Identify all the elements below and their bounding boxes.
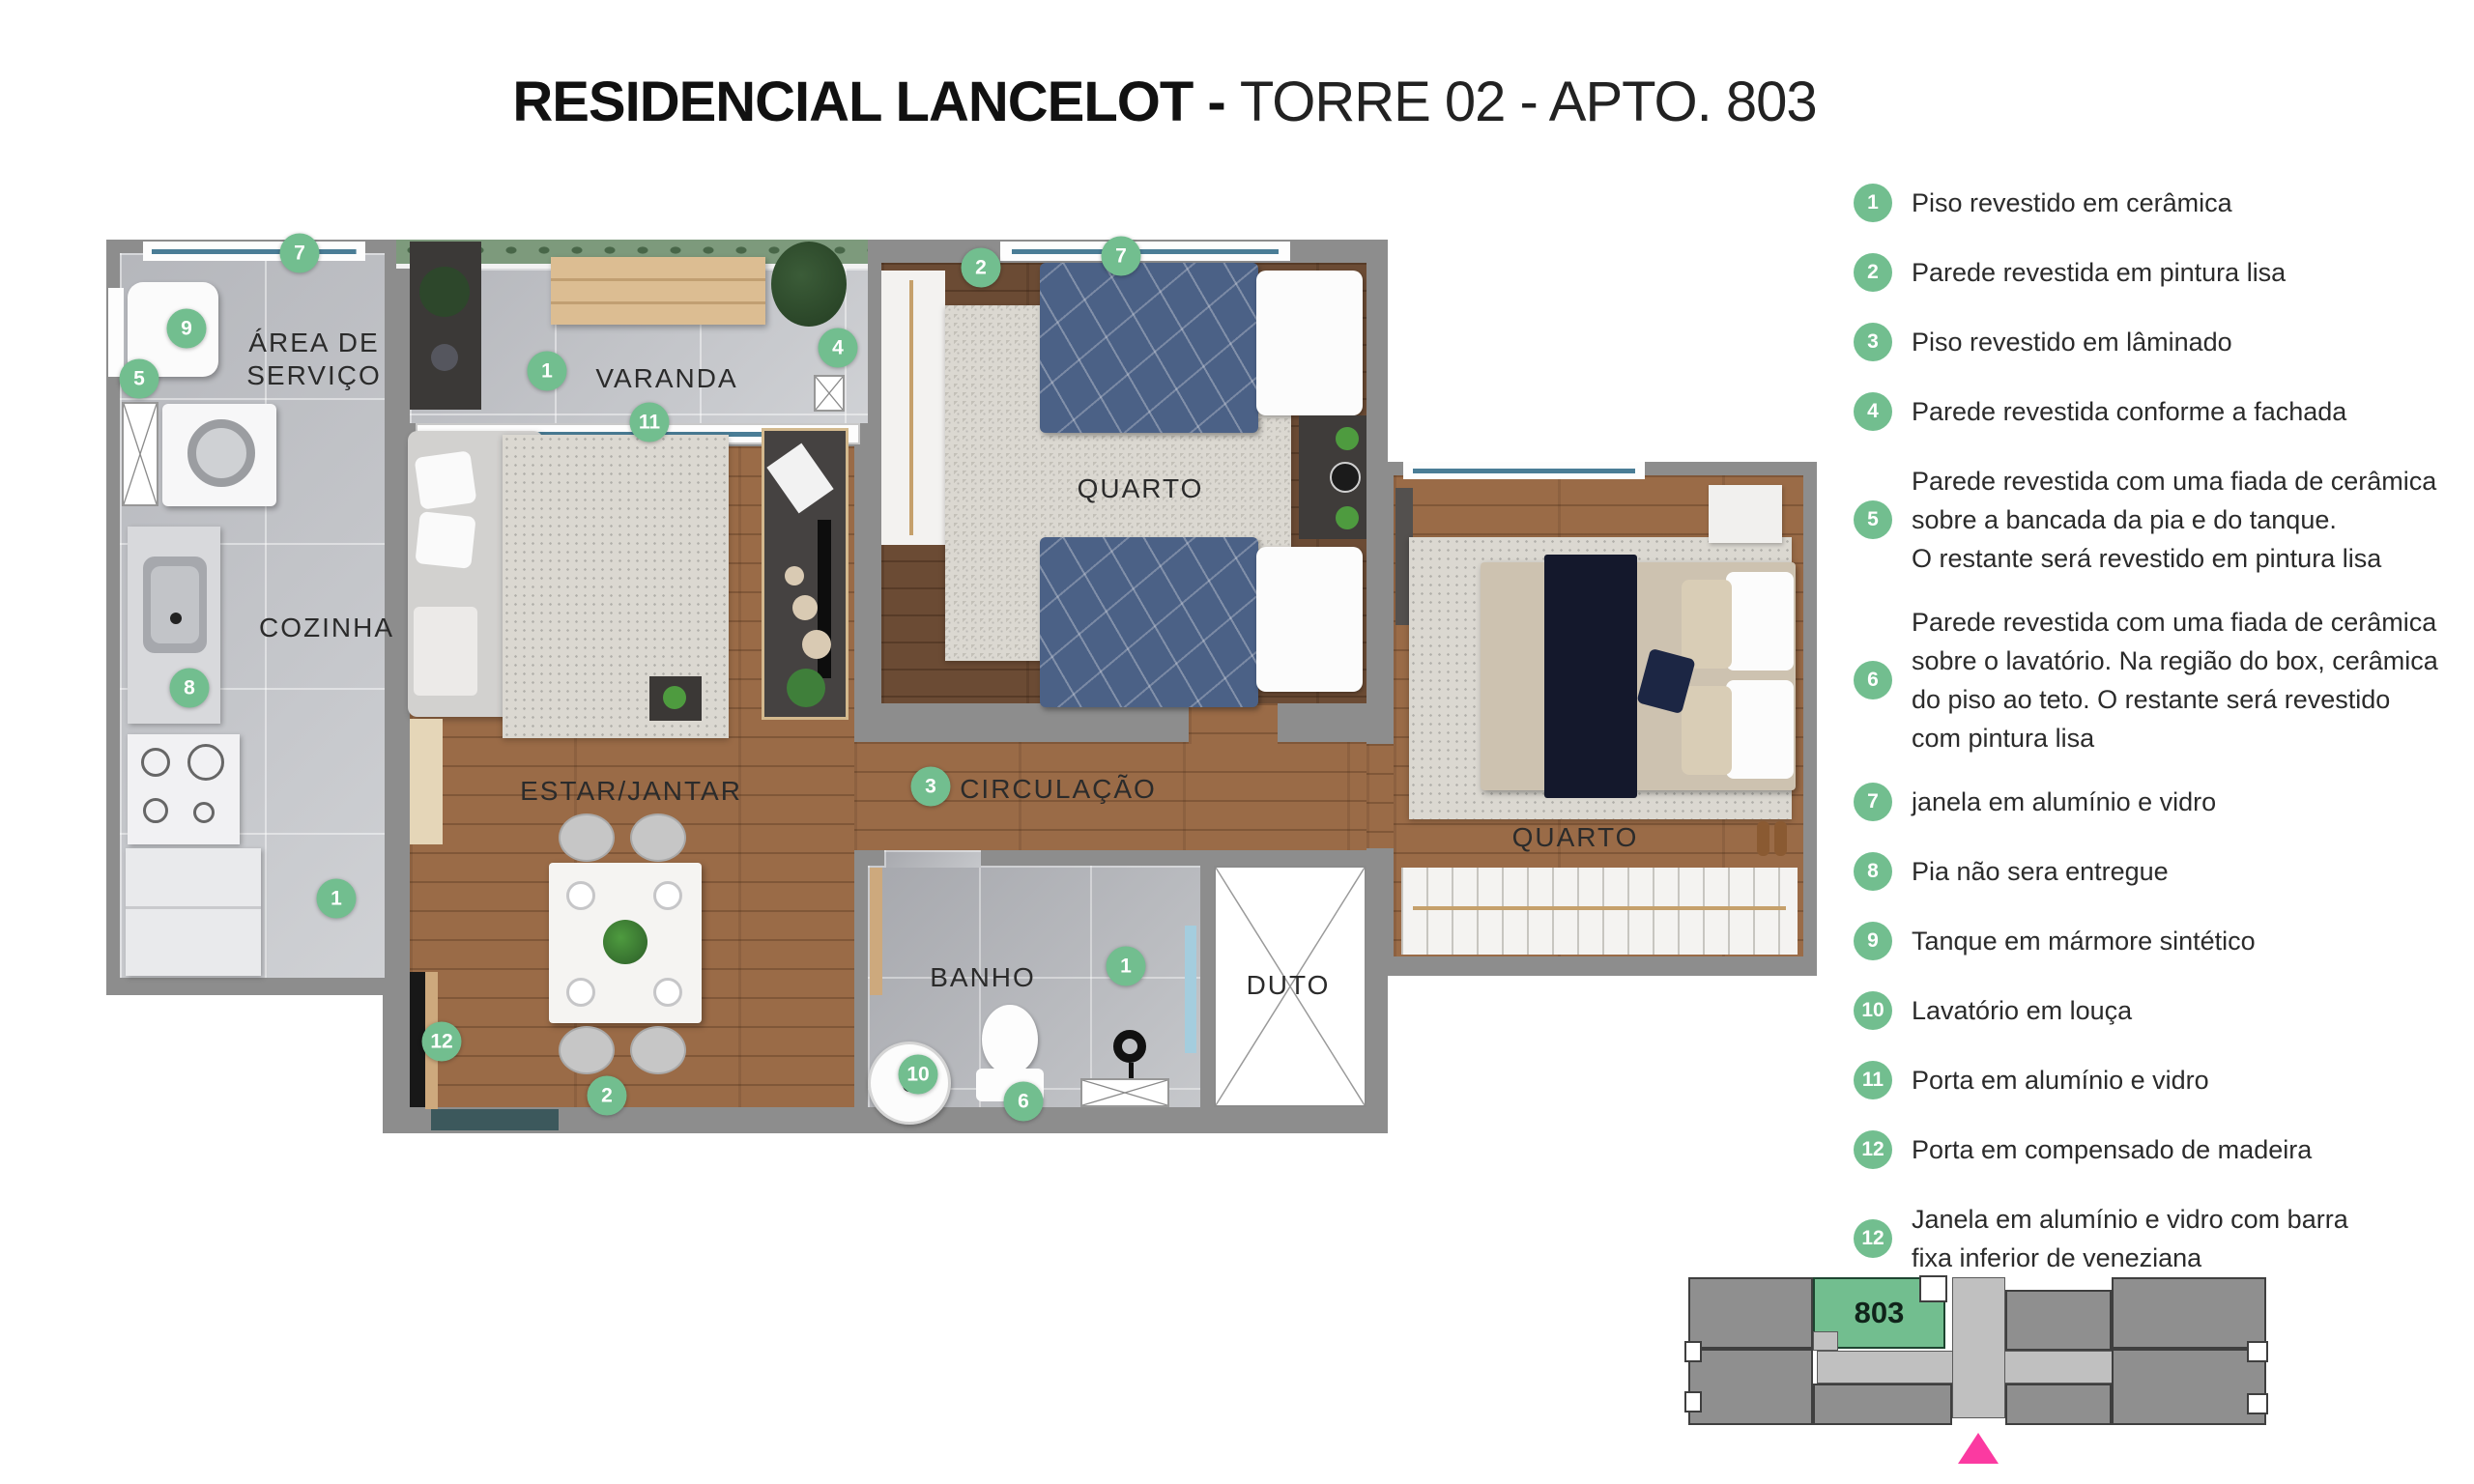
keyplan-entrance-arrow-icon bbox=[1958, 1433, 1999, 1464]
varanda-console-decor bbox=[431, 344, 458, 371]
quarto1-bed-b-pillow bbox=[1256, 547, 1363, 692]
keyplan-unit bbox=[2005, 1290, 2112, 1351]
keyplan-unit bbox=[1688, 1349, 1813, 1425]
legend-number-badge: 8 bbox=[1854, 852, 1892, 891]
legend-item-6: 6Parede revestida com uma fiada de cerâm… bbox=[1854, 603, 2472, 757]
quarto1-bed-a-pillow bbox=[1256, 271, 1363, 415]
varanda-console-plant bbox=[419, 267, 470, 317]
kitchen-faucet bbox=[170, 613, 182, 624]
legend-item-text: janela em alumínio e vidro bbox=[1912, 783, 2216, 821]
quarto2-shoes bbox=[1757, 821, 1769, 856]
plan-marker-6: 6 bbox=[1004, 1082, 1044, 1122]
keyplan: 803 bbox=[1682, 1270, 2281, 1473]
legend-number-badge: 1 bbox=[1854, 184, 1892, 222]
dining-chair bbox=[630, 1026, 686, 1074]
legend-item-13: 12Janela em alumínio e vidro com barra f… bbox=[1854, 1200, 2472, 1277]
side-table-plant bbox=[663, 686, 686, 709]
legend-item-text: Lavatório em louça bbox=[1912, 991, 2132, 1030]
varanda-bench-slat bbox=[551, 301, 765, 304]
room-label-duto: DUTO bbox=[1247, 969, 1331, 1002]
plan-marker-1: 1 bbox=[317, 879, 357, 919]
quarto1-wardrobe bbox=[881, 271, 945, 545]
plan-marker-7: 7 bbox=[280, 234, 320, 273]
dining-chair bbox=[630, 813, 686, 862]
stove bbox=[128, 734, 240, 844]
room-label-circulacao: CIRCULAÇÃO bbox=[960, 773, 1157, 806]
room-label-quarto-1: QUARTO bbox=[1078, 472, 1204, 505]
tv-console-bowl bbox=[785, 566, 804, 585]
quarto2-pillow-tan bbox=[1682, 580, 1732, 669]
window-quarto-2 bbox=[1403, 462, 1645, 479]
quarto2-pillow bbox=[1726, 572, 1794, 671]
legend-number-badge: 12 bbox=[1854, 1219, 1892, 1258]
keyplan-notch bbox=[2247, 1393, 2268, 1414]
legend-item-text: Piso revestido em lâminado bbox=[1912, 323, 2232, 361]
keyplan-corridor bbox=[1952, 1277, 2005, 1418]
floorplan-page: RESIDENCIAL LANCELOT - TORRE 02 - APTO. … bbox=[0, 0, 2474, 1484]
varanda-bench bbox=[551, 257, 765, 325]
plan-marker-8: 8 bbox=[170, 669, 210, 708]
legend-number-badge: 9 bbox=[1854, 922, 1892, 960]
room-label-area-servico: ÁREA DE SERVIÇO bbox=[246, 327, 382, 392]
keyplan-notch bbox=[1684, 1341, 1702, 1362]
legend-item-3: 3Piso revestido em lâminado bbox=[1854, 323, 2472, 361]
legend-item-text: Parede revestida com uma fiada de cerâmi… bbox=[1912, 603, 2438, 757]
floorplan: ÁREA DE SERVIÇOVARANDAQUARTOCOZINHAESTAR… bbox=[0, 0, 1836, 1159]
dining-centerpiece-plant bbox=[603, 920, 647, 964]
kitchen-sink-basin bbox=[151, 566, 199, 643]
plan-marker-3: 3 bbox=[911, 767, 951, 807]
tv-console-bowl bbox=[792, 595, 818, 620]
fridge-divider bbox=[126, 906, 261, 909]
legend-number-badge: 7 bbox=[1854, 783, 1892, 821]
legend-item-text: Parede revestida em pintura lisa bbox=[1912, 253, 2286, 292]
stove-burner bbox=[143, 798, 168, 823]
plan-marker-11: 11 bbox=[630, 403, 670, 442]
legend-item-text: Janela em alumínio e vidro com barra fix… bbox=[1912, 1200, 2348, 1277]
quarto2-closet-rail bbox=[1413, 906, 1786, 910]
legend-number-badge: 11 bbox=[1854, 1061, 1892, 1099]
quarto1-bed-a bbox=[1040, 263, 1258, 433]
legend-item-text: Porta em compensado de madeira bbox=[1912, 1130, 2312, 1169]
entry-mat bbox=[431, 1109, 559, 1130]
quarto2-closet bbox=[1401, 868, 1798, 955]
legend-item-11: 11Porta em alumínio e vidro bbox=[1854, 1061, 2472, 1099]
plan-marker-12: 12 bbox=[422, 1022, 462, 1062]
window-area-servico bbox=[143, 242, 365, 261]
legend: 1Piso revestido em cerâmica2Parede reves… bbox=[1854, 184, 2472, 1302]
plan-marker-2: 2 bbox=[588, 1076, 627, 1116]
keyplan-notch bbox=[2247, 1341, 2268, 1362]
legend-item-text: Piso revestido em cerâmica bbox=[1912, 184, 2232, 222]
quarto2-pillow bbox=[1726, 680, 1794, 779]
legend-item-1: 1Piso revestido em cerâmica bbox=[1854, 184, 2472, 222]
quarto2-pillow-tan bbox=[1682, 686, 1732, 775]
keyplan-unit bbox=[1813, 1384, 1952, 1425]
plan-marker-4: 4 bbox=[819, 328, 858, 368]
quarto1-nightstand-clock bbox=[1330, 462, 1361, 493]
legend-item-text: Tanque em mármore sintético bbox=[1912, 922, 2256, 960]
service-cabinet bbox=[122, 402, 158, 506]
plan-marker-1: 1 bbox=[1107, 947, 1146, 986]
tv-console-plant bbox=[787, 669, 825, 707]
varanda-shaft bbox=[814, 375, 845, 412]
banho-vanity bbox=[1080, 1078, 1169, 1107]
stove-burner bbox=[193, 802, 215, 823]
room-label-quarto-2: QUARTO bbox=[1512, 821, 1639, 854]
plan-marker-5: 5 bbox=[120, 359, 159, 399]
keyplan-unit bbox=[1688, 1277, 1813, 1349]
room-label-varanda: VARANDA bbox=[595, 362, 737, 395]
legend-item-text: Parede revestida conforme a fachada bbox=[1912, 392, 2346, 431]
quarto1-wardrobe-rail bbox=[909, 280, 913, 535]
entry-cabinet bbox=[410, 719, 443, 844]
legend-item-2: 2Parede revestida em pintura lisa bbox=[1854, 253, 2472, 292]
sofa-pillow bbox=[415, 450, 477, 510]
keyplan-notch bbox=[1684, 1391, 1702, 1413]
room-label-estar-jantar: ESTAR/JANTAR bbox=[520, 775, 742, 808]
varanda-bench-slat bbox=[551, 278, 765, 281]
legend-item-5: 5Parede revestida com uma fiada de cerâm… bbox=[1854, 462, 2472, 578]
legend-item-text: Pia não sera entregue bbox=[1912, 852, 2169, 891]
door-gap-quarto-1 bbox=[1189, 703, 1278, 744]
dining-plate bbox=[566, 978, 595, 1007]
keyplan-corridor bbox=[1813, 1331, 1838, 1351]
shower-glass bbox=[1185, 926, 1196, 1053]
legend-item-text: Parede revestida com uma fiada de cerâmi… bbox=[1912, 462, 2436, 578]
quarto2-nightstand bbox=[1709, 485, 1782, 543]
plan-marker-1: 1 bbox=[528, 352, 567, 391]
plan-marker-2: 2 bbox=[962, 248, 1001, 288]
varanda-plant bbox=[771, 242, 847, 327]
sofa-blanket bbox=[414, 607, 477, 696]
room-label-banho: BANHO bbox=[930, 961, 1036, 994]
legend-number-badge: 3 bbox=[1854, 323, 1892, 361]
legend-item-4: 4Parede revestida conforme a fachada bbox=[1854, 392, 2472, 431]
quarto1-nightstand-plant bbox=[1336, 427, 1359, 450]
toilet-bowl bbox=[982, 1005, 1038, 1074]
keyplan-unit bbox=[2112, 1277, 2266, 1349]
legend-item-7: 7janela em alumínio e vidro bbox=[1854, 783, 2472, 821]
dining-plate bbox=[566, 881, 595, 910]
legend-number-badge: 2 bbox=[1854, 253, 1892, 292]
quarto1-nightstand-plant bbox=[1336, 506, 1359, 529]
quarto2-bed-runner bbox=[1544, 555, 1637, 798]
plan-marker-7: 7 bbox=[1102, 237, 1141, 276]
washing-machine-drum bbox=[187, 419, 255, 487]
window-area-servico-left bbox=[108, 288, 124, 377]
keyplan-unit-803-label: 803 bbox=[1855, 1296, 1905, 1330]
stove-burner bbox=[187, 744, 224, 781]
legend-item-text: Porta em alumínio e vidro bbox=[1912, 1061, 2209, 1099]
dining-plate bbox=[653, 881, 682, 910]
stove-burner bbox=[141, 748, 170, 777]
legend-number-badge: 4 bbox=[1854, 392, 1892, 431]
dining-chair bbox=[559, 1026, 615, 1074]
room-label-cozinha: COZINHA bbox=[259, 612, 394, 644]
legend-item-12: 12Porta em compensado de madeira bbox=[1854, 1130, 2472, 1169]
quarto1-bed-b bbox=[1040, 537, 1258, 707]
quarto2-shoes bbox=[1774, 821, 1787, 856]
legend-item-9: 9Tanque em mármore sintético bbox=[1854, 922, 2472, 960]
legend-number-badge: 6 bbox=[1854, 661, 1892, 699]
keyplan-unit bbox=[2005, 1384, 2112, 1425]
keyplan-notch bbox=[1919, 1275, 1947, 1302]
legend-item-8: 8Pia não sera entregue bbox=[1854, 852, 2472, 891]
banho-door-leaf bbox=[870, 868, 882, 995]
legend-number-badge: 5 bbox=[1854, 500, 1892, 539]
plan-marker-10: 10 bbox=[899, 1055, 938, 1095]
window-quarto-1 bbox=[1000, 242, 1290, 261]
shower-column bbox=[1113, 1030, 1146, 1063]
plan-marker-9: 9 bbox=[167, 309, 207, 349]
keyplan-unit bbox=[2112, 1349, 2266, 1425]
door-gap-banho bbox=[884, 850, 981, 868]
legend-number-badge: 12 bbox=[1854, 1130, 1892, 1169]
sofa-pillow bbox=[415, 511, 475, 569]
legend-item-10: 10Lavatório em louça bbox=[1854, 991, 2472, 1030]
dining-chair bbox=[559, 813, 615, 862]
tv-console-bowl bbox=[802, 630, 831, 659]
legend-number-badge: 10 bbox=[1854, 991, 1892, 1030]
dining-plate bbox=[653, 978, 682, 1007]
fridge bbox=[126, 848, 261, 976]
